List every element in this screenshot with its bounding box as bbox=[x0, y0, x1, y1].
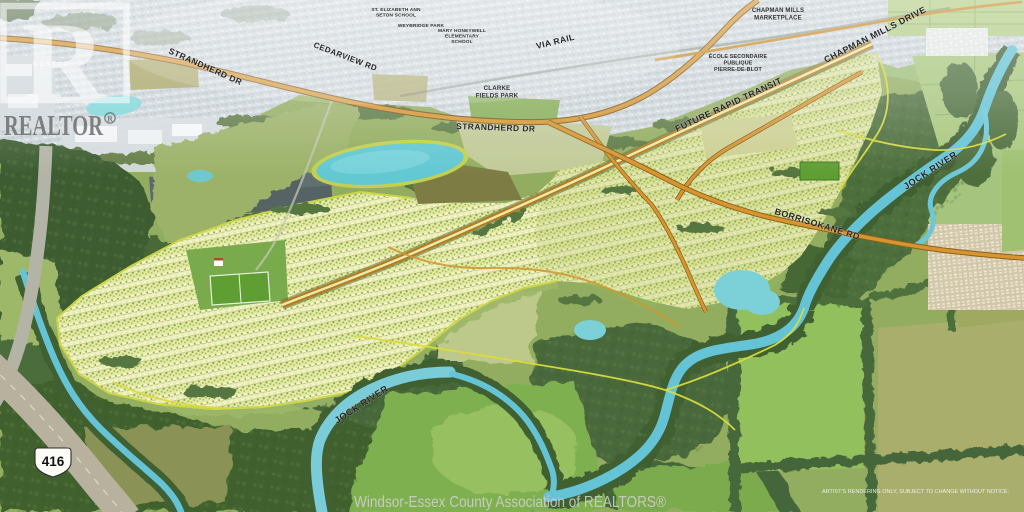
svg-text:ARTIST'S RENDERING ONLY, SUBJE: ARTIST'S RENDERING ONLY, SUBJECT TO CHAN… bbox=[822, 489, 1010, 495]
svg-text:ELEMENTARY: ELEMENTARY bbox=[445, 34, 480, 40]
svg-text:ÉCOLE SECONDAIRE: ÉCOLE SECONDAIRE bbox=[709, 52, 768, 60]
svg-text:PIERRE-DE-BLOT: PIERRE-DE-BLOT bbox=[714, 67, 762, 73]
svg-text:FIELDS PARK: FIELDS PARK bbox=[476, 93, 519, 100]
svg-text:REALTOR: REALTOR bbox=[4, 111, 104, 142]
svg-text:SETON SCHOOL: SETON SCHOOL bbox=[376, 13, 416, 19]
svg-text:R: R bbox=[107, 115, 113, 124]
svg-text:ST. ELIZABETH ANN: ST. ELIZABETH ANN bbox=[371, 7, 421, 13]
svg-text:SCHOOL: SCHOOL bbox=[451, 39, 472, 45]
svg-text:CLARKE: CLARKE bbox=[484, 85, 511, 92]
svg-text:Windsor-Essex County Associati: Windsor-Essex County Association of REAL… bbox=[354, 494, 666, 511]
svg-text:MARKETPLACE: MARKETPLACE bbox=[754, 16, 802, 22]
svg-text:R: R bbox=[22, 0, 107, 124]
svg-text:MARY HONEYWELL: MARY HONEYWELL bbox=[438, 28, 486, 34]
svg-text:PUBLIQUE: PUBLIQUE bbox=[723, 61, 752, 67]
svg-text:416: 416 bbox=[42, 454, 65, 469]
svg-text:CHAPMAN MILLS: CHAPMAN MILLS bbox=[752, 8, 804, 14]
